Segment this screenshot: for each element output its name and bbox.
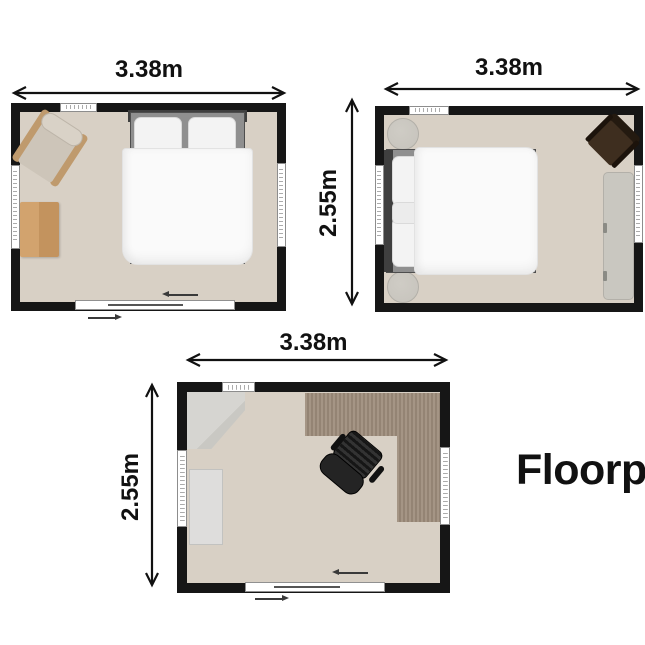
bedroom1-width-label: 3.38m [11,56,287,84]
page-title: Floorp [516,446,645,495]
office-height-label: 2.55m [116,382,146,592]
side-table [20,202,59,257]
bedroom1-sliding-door [75,300,235,310]
round-rug-bottom [387,271,419,303]
office-width-arrow [184,352,450,368]
double-bed-2 [384,147,539,275]
bedroom1-window-top [60,103,97,112]
bedroom2-height-arrow [344,96,360,308]
bedroom1-door-arrow-in [168,294,198,296]
bedroom2-window-left [375,165,384,245]
office [177,382,450,593]
bedroom1-window-right [277,163,286,247]
bedroom1-window-left [11,165,20,249]
office-window-left [177,450,187,527]
bed1-duvet [122,148,253,265]
office-height-arrow [144,381,160,589]
bedroom2 [375,106,643,312]
double-bed-1 [119,108,259,266]
bedroom1-door-arrow-out [88,317,116,319]
office-window-top [222,382,255,392]
office-window-right [440,447,450,525]
office-door-arrow-in [338,572,368,574]
bench-handle-bottom [603,271,607,281]
bedroom2-window-top [409,106,449,115]
office-door-arrow-out [255,598,283,600]
bedroom2-width-arrow [382,81,642,97]
office-sliding-door [245,582,385,592]
round-rug-top [387,118,419,150]
wardrobe [189,469,223,545]
l-desk-side [397,436,440,522]
bedroom2-height-label: 2.55m [314,98,344,308]
bedroom2-window-right [634,165,643,243]
bedroom1 [11,103,286,311]
bedroom2-width-label: 3.38m [375,54,643,82]
bench-handle-top [603,223,607,233]
bed2-duvet [414,147,538,275]
floorplan-canvas: 3.38m 3.38m 2.55m [0,0,645,645]
bedroom1-width-arrow [10,85,288,101]
bench [603,172,634,300]
l-desk-top [305,393,440,436]
